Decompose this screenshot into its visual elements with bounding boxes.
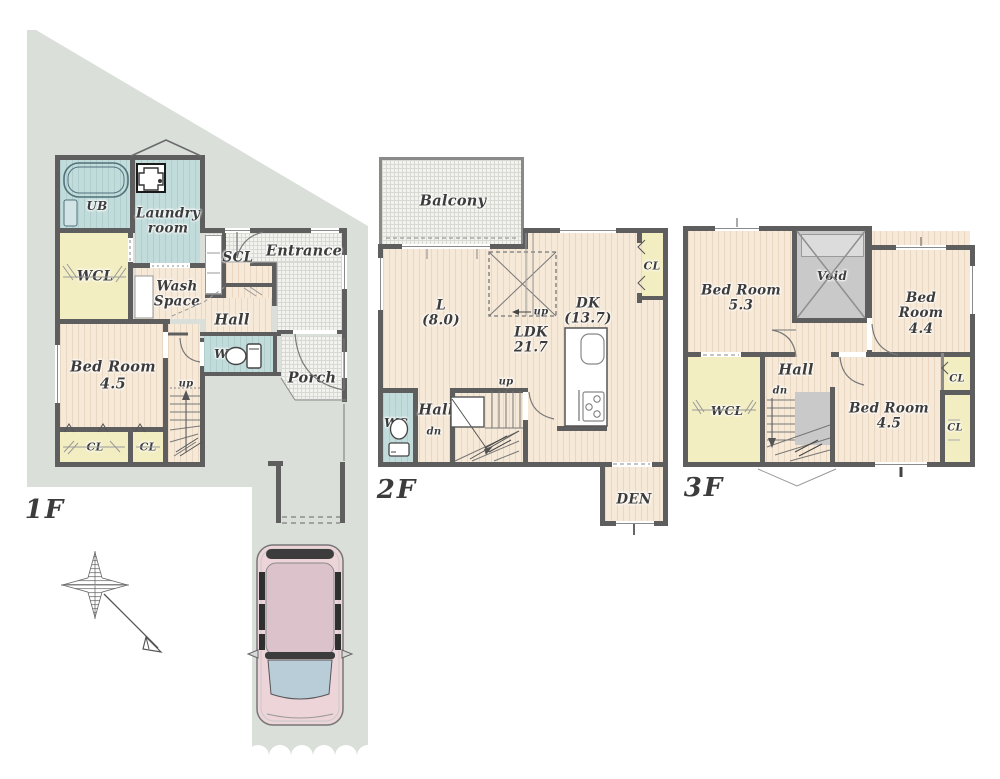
wall-segment bbox=[450, 388, 528, 393]
wall-segment bbox=[222, 283, 276, 287]
room-label-den: DEN bbox=[616, 492, 651, 507]
wall-segment bbox=[760, 357, 765, 467]
room-label-bedroom45: Bed Room 4.5 bbox=[849, 402, 929, 433]
line bbox=[104, 594, 158, 648]
scallop-edge-circle bbox=[291, 745, 313, 767]
window-marker bbox=[560, 228, 616, 233]
wall-segment bbox=[55, 155, 60, 467]
wall-segment bbox=[55, 228, 135, 233]
wall-opening bbox=[701, 352, 741, 357]
room-label-hall-2f: Hall bbox=[418, 403, 453, 420]
wall-segment bbox=[205, 294, 226, 298]
room-label-wc-2f: WC bbox=[384, 417, 408, 431]
room-label-ub: UB bbox=[86, 200, 107, 214]
scallop-edge-circle bbox=[247, 745, 269, 767]
closet-label-top-3f: CL bbox=[949, 373, 965, 384]
window-marker bbox=[616, 521, 654, 526]
hall-nook-closet-1f bbox=[226, 287, 272, 298]
path bbox=[143, 637, 161, 652]
wall-segment bbox=[378, 388, 418, 393]
path bbox=[758, 469, 836, 486]
thin-wall-segment bbox=[941, 353, 944, 390]
scallop-edge-circle bbox=[335, 745, 357, 767]
room-label-wcl-1f: WCL bbox=[77, 269, 113, 284]
wall-segment bbox=[200, 376, 205, 467]
wall-opening bbox=[867, 318, 872, 350]
scl-shelf-1f bbox=[205, 235, 222, 294]
floor-title-1f: 1F bbox=[25, 496, 66, 526]
wall-opening bbox=[839, 352, 866, 357]
window-marker bbox=[55, 345, 60, 403]
north-arrow-icon bbox=[61, 551, 161, 652]
room-ub-1f bbox=[60, 160, 130, 228]
window-marker bbox=[715, 226, 759, 231]
void-label-up-2f: up bbox=[534, 306, 549, 317]
window-marker bbox=[311, 228, 339, 233]
corridor-stairs-1f bbox=[168, 324, 200, 462]
entrance-lower-1f bbox=[277, 262, 342, 332]
wall-segment bbox=[940, 390, 975, 395]
floor-title-3f: 3F bbox=[684, 474, 725, 504]
wall-segment bbox=[640, 296, 668, 300]
room-label-bedroom44: Bed Room 4.4 bbox=[882, 291, 961, 337]
floor-title-2f: 2F bbox=[377, 476, 418, 506]
window-marker bbox=[896, 245, 946, 250]
closet-label-2f: CL bbox=[643, 261, 660, 274]
wall-segment bbox=[200, 332, 281, 336]
scallop-edge-circle bbox=[269, 745, 291, 767]
wall-segment bbox=[792, 231, 797, 323]
stairs-label-up-1f: up bbox=[179, 378, 194, 389]
wall-opening bbox=[612, 462, 652, 467]
wall-segment bbox=[273, 332, 277, 376]
wall-opening bbox=[150, 263, 190, 268]
room-label-balcony: Balcony bbox=[420, 194, 487, 211]
scallop-edge-circle bbox=[357, 745, 379, 767]
room-label-bedroom53: Bed Room 5.3 bbox=[701, 284, 781, 315]
wall-segment bbox=[55, 319, 170, 324]
stairs-label-dn-3f: dn bbox=[773, 385, 788, 396]
wall-segment bbox=[637, 233, 642, 243]
room-label-laundry: Laundry room bbox=[136, 207, 200, 238]
wall-segment bbox=[276, 466, 281, 523]
room-label-wc-1f: WC bbox=[214, 348, 238, 362]
window-marker bbox=[342, 255, 347, 289]
wall-opening bbox=[523, 392, 528, 420]
scallop-edge-circle bbox=[313, 745, 335, 767]
room-label-ldk: LDK 21.7 bbox=[514, 326, 548, 357]
closet-label-right-1f: CL bbox=[139, 442, 156, 455]
wall-segment bbox=[830, 387, 835, 467]
void-skylight-3f bbox=[801, 234, 864, 257]
window-marker bbox=[342, 352, 347, 378]
wall-segment bbox=[683, 226, 688, 467]
floorplan-page: { "palette": { "site_green_gray": "#dadf… bbox=[0, 0, 1000, 779]
stairs-label-up-2f: up bbox=[499, 376, 514, 387]
polygon bbox=[62, 552, 127, 617]
window-marker bbox=[875, 462, 927, 467]
porch-1f bbox=[281, 336, 346, 400]
wall-segment bbox=[557, 426, 607, 431]
window-marker bbox=[402, 244, 490, 249]
thin-wall-segment bbox=[379, 157, 524, 160]
wall-segment bbox=[792, 318, 870, 323]
room-label-hall-1f: Hall bbox=[214, 313, 249, 330]
room-label-entrance: Entrance bbox=[266, 244, 342, 261]
window-marker bbox=[225, 228, 250, 233]
wall-segment bbox=[413, 388, 418, 467]
wall-opening bbox=[163, 332, 168, 358]
room-label-hall-3f: Hall bbox=[778, 363, 813, 380]
closet-label-left-1f: CL bbox=[86, 442, 103, 455]
wall-segment bbox=[200, 372, 281, 376]
wall-segment bbox=[523, 228, 528, 249]
closet-label-bottom-3f: CL bbox=[947, 422, 963, 433]
room-label-porch: Porch bbox=[288, 371, 337, 388]
wall-segment bbox=[940, 392, 945, 467]
void-label-3f: Void bbox=[817, 270, 847, 284]
wall-segment bbox=[683, 226, 872, 231]
wall-segment bbox=[600, 467, 605, 523]
wall-segment bbox=[340, 462, 345, 523]
wall-opening bbox=[128, 238, 133, 262]
wall-segment bbox=[128, 432, 133, 467]
room-label-scl: SCL bbox=[223, 250, 254, 265]
wall-segment bbox=[683, 462, 975, 467]
wall-opening bbox=[200, 342, 204, 366]
room-label-wcl-3f: WCL bbox=[711, 405, 743, 419]
wall-segment bbox=[663, 467, 668, 523]
room-label-wash: Wash Space bbox=[154, 280, 200, 311]
stairs-label-dn-2f: dn bbox=[427, 426, 442, 437]
window-marker bbox=[378, 258, 383, 310]
window-marker bbox=[970, 266, 975, 314]
path bbox=[146, 637, 149, 649]
wall-segment bbox=[200, 155, 205, 233]
room-label-living: L (8.0) bbox=[422, 299, 460, 330]
wall-segment bbox=[55, 427, 168, 432]
wall-segment bbox=[130, 155, 135, 233]
wall-segment bbox=[663, 228, 668, 467]
thin-wall-segment bbox=[379, 157, 382, 247]
stairwell-3f bbox=[795, 392, 830, 445]
room-label-bedroom-1f: Bed Room 4.5 bbox=[70, 359, 156, 392]
wall-opening bbox=[293, 330, 337, 334]
room-label-dk: DK (13.7) bbox=[564, 297, 611, 328]
